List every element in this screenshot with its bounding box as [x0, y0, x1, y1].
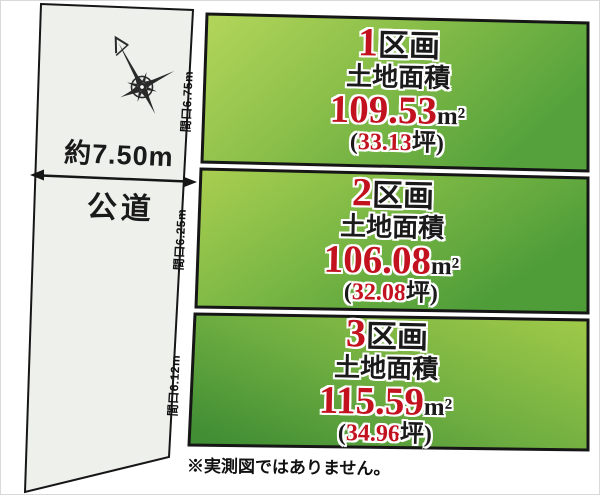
- parcel-2-shape: [196, 169, 588, 313]
- parcel-1-frontage-label: 間口6.75m: [177, 70, 197, 132]
- parcel-3-frontage-label: 間口6.12m: [164, 354, 184, 416]
- land-plan-image: 約7.50m 公道 1区画 土地面積 109.53m² (33.13坪) 2区画…: [0, 0, 600, 495]
- footnote: ※実測図ではありません。: [187, 452, 391, 480]
- parcel-2-frontage-label: 間口6.25m: [170, 208, 190, 270]
- plan-drawing: [1, 1, 600, 495]
- parcel-3-shape: [189, 314, 588, 450]
- road-width-label: 約7.50m: [36, 129, 202, 175]
- parcel-1-shape: [202, 14, 588, 171]
- road-area: [25, 4, 193, 492]
